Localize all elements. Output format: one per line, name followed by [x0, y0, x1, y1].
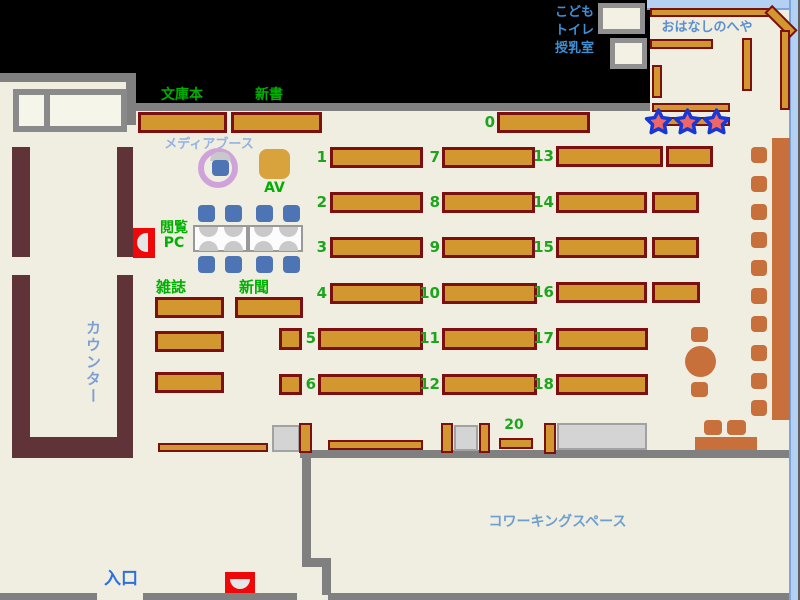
shelf-number-17: 17 [532, 328, 554, 349]
shinsho-shelf [231, 112, 322, 133]
shelf-number-3: 3 [309, 237, 327, 258]
shelf-number-9: 9 [422, 237, 440, 258]
newspaper-shelf [235, 297, 303, 318]
shelf-2 [330, 192, 423, 213]
shelf-4 [330, 283, 423, 304]
shelf-11 [442, 328, 537, 350]
media-booth-chair [212, 160, 229, 176]
pc-chair [198, 205, 215, 222]
av-label: AV [259, 180, 290, 196]
pc-label-line1: 閲覧 [156, 221, 192, 236]
backdrop-top-left [0, 0, 136, 73]
shelf-number-4: 4 [309, 283, 327, 304]
service-desk [13, 89, 127, 132]
counter-wall-right-upper [117, 147, 133, 257]
low-shelf-left [158, 443, 268, 452]
stool [751, 345, 767, 361]
media-booth-label: メディアブース [139, 133, 279, 147]
shelf-6 [318, 374, 423, 395]
storytime-shelf-top [650, 8, 770, 17]
coworking-jog-wall-2 [322, 566, 331, 595]
end-shelf-1 [299, 423, 312, 453]
red-marker [133, 228, 155, 258]
shelf-number-5: 5 [298, 328, 316, 349]
stool [751, 373, 767, 389]
magazine-shelf-1 [155, 297, 224, 318]
pc-chair [283, 256, 300, 273]
shelf-number-18: 18 [532, 374, 554, 395]
round-table [685, 346, 716, 377]
stool [727, 420, 746, 435]
pc-area-label: 閲覧 PC [156, 221, 192, 252]
return-slot-icon [137, 233, 148, 252]
library-floor-map: こども トイレ 授乳室 おはなしのへや 文庫本 新書 0 メディアブース AV … [0, 0, 800, 600]
kids-label-line3: 授乳室 [534, 40, 594, 58]
shelf-number-1: 1 [309, 147, 327, 168]
shelf-16 [556, 282, 647, 303]
shelf-17 [556, 328, 648, 350]
shelf-number-15: 15 [532, 237, 554, 258]
stool [751, 316, 767, 332]
coworking-left-wall [302, 450, 311, 567]
pc-chair [198, 256, 215, 273]
counter-wall-left [12, 275, 30, 458]
stool [751, 232, 767, 248]
pc-label-line2: PC [156, 236, 192, 251]
stool [751, 288, 767, 304]
shelf-number-14: 14 [532, 192, 554, 213]
stool [691, 382, 708, 397]
counter-wall-left-upper [12, 147, 30, 257]
shelf-number-20: 20 [502, 417, 526, 433]
kids-label-line2: トイレ [534, 22, 594, 40]
storytime-shelf-small [652, 65, 662, 98]
stool [704, 420, 722, 435]
counter-label: カウンター [80, 320, 104, 420]
shelf-16-extra [652, 282, 700, 303]
stool [751, 176, 767, 192]
shelf-3 [330, 237, 423, 258]
shelf-18 [556, 374, 648, 395]
stool [751, 400, 767, 416]
shelf-20 [499, 438, 533, 449]
stool [751, 204, 767, 220]
bottom-wall-mid [143, 593, 297, 600]
gray-table-2 [454, 425, 478, 451]
window-counter [772, 138, 790, 420]
coworking-label: コワーキングスペース [470, 511, 645, 529]
shelf-9 [442, 237, 535, 258]
shelf-number-12: 12 [418, 374, 440, 395]
pc-chair [225, 205, 242, 222]
return-slot-icon [230, 579, 250, 589]
shelf-number-2: 2 [309, 192, 327, 213]
service-desk-divider [44, 89, 50, 132]
shelf-7 [442, 147, 535, 168]
wall-top [136, 103, 650, 111]
staff-room-top-wall [0, 73, 136, 82]
pc-chair [256, 256, 273, 273]
end-shelf-4 [544, 423, 556, 454]
gray-table-3 [557, 423, 647, 450]
shelf-number-0: 0 [477, 112, 495, 133]
storytime-shelf [650, 39, 713, 49]
shelf-15 [556, 237, 647, 258]
counter-wall-bottom [12, 437, 133, 458]
storytime-shelf-right [780, 30, 790, 110]
stool [751, 260, 767, 276]
stool [751, 147, 767, 163]
shelf-1 [330, 147, 423, 168]
end-shelf-2 [441, 423, 453, 453]
shelf-number-13: 13 [532, 146, 554, 167]
kids-toilet-room [598, 3, 645, 34]
shelf-5 [318, 328, 423, 350]
pc-chair [225, 256, 242, 273]
shelf-12 [442, 374, 537, 395]
storytime-room-label: おはなしのへや [655, 16, 759, 32]
magazines-label: 雑誌 [151, 276, 191, 294]
low-shelf-mid [328, 440, 423, 450]
bench [695, 437, 757, 450]
shelf-15-extra [652, 237, 699, 258]
shelf-0 [497, 112, 590, 133]
pc-chair [256, 205, 273, 222]
storytime-shelf-vertical [742, 38, 752, 91]
bottom-wall-right [328, 593, 793, 600]
pc-chair [283, 205, 300, 222]
shinsho-label: 新書 [239, 84, 299, 101]
bunkobon-shelf [138, 112, 227, 133]
magazine-shelf-3 [155, 372, 224, 393]
shelf-number-16: 16 [532, 282, 554, 303]
shelf-number-7: 7 [422, 147, 440, 168]
gray-table-1 [272, 425, 300, 452]
shelf-13-extra [666, 146, 713, 167]
star-icon [702, 108, 731, 136]
shelf-8 [442, 192, 535, 213]
bunkobon-label: 文庫本 [152, 84, 212, 101]
kids-area-label: こども トイレ 授乳室 [534, 4, 594, 60]
star-icon [644, 108, 673, 136]
shelf-14 [556, 192, 647, 213]
nursing-room [610, 38, 647, 69]
star-icon [673, 108, 702, 136]
staff-room-right-wall [126, 73, 136, 125]
shelf-number-6: 6 [298, 374, 316, 395]
shelf-13 [556, 146, 663, 167]
bottom-wall-left [0, 593, 97, 600]
shelf-10 [442, 283, 537, 304]
shelf-number-10: 10 [418, 283, 440, 304]
shelf-number-11: 11 [418, 328, 440, 349]
red-marker [225, 572, 255, 593]
av-table [259, 149, 290, 179]
shelf-number-8: 8 [422, 192, 440, 213]
magazine-shelf-2 [155, 331, 224, 352]
stool [691, 327, 708, 342]
kids-label-line1: こども [534, 4, 594, 22]
entrance-label: 入口 [99, 564, 143, 586]
newspapers-label: 新聞 [234, 276, 274, 294]
end-shelf-3 [479, 423, 490, 453]
shelf-14-extra [652, 192, 699, 213]
counter-wall-right [117, 275, 133, 440]
